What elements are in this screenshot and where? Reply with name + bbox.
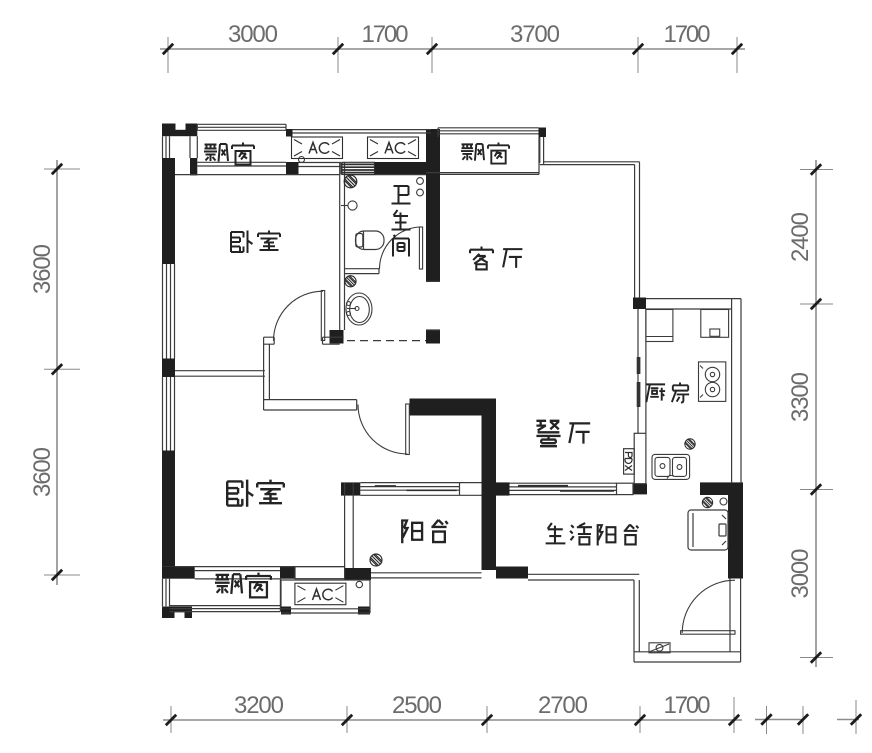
svg-text:3200: 3200	[234, 692, 284, 719]
svg-text:1700: 1700	[664, 21, 711, 48]
svg-text:2400: 2400	[787, 212, 814, 262]
svg-text:3700: 3700	[510, 21, 560, 48]
svg-text:1700: 1700	[664, 692, 711, 719]
svg-text:3300: 3300	[787, 372, 814, 422]
svg-text:3000: 3000	[787, 549, 814, 599]
svg-text:2500: 2500	[392, 692, 442, 719]
svg-text:3600: 3600	[29, 447, 56, 497]
svg-text:2700: 2700	[538, 692, 588, 719]
svg-text:1700: 1700	[362, 21, 409, 48]
svg-text:3000: 3000	[228, 21, 278, 48]
svg-text:3600: 3600	[29, 244, 56, 294]
